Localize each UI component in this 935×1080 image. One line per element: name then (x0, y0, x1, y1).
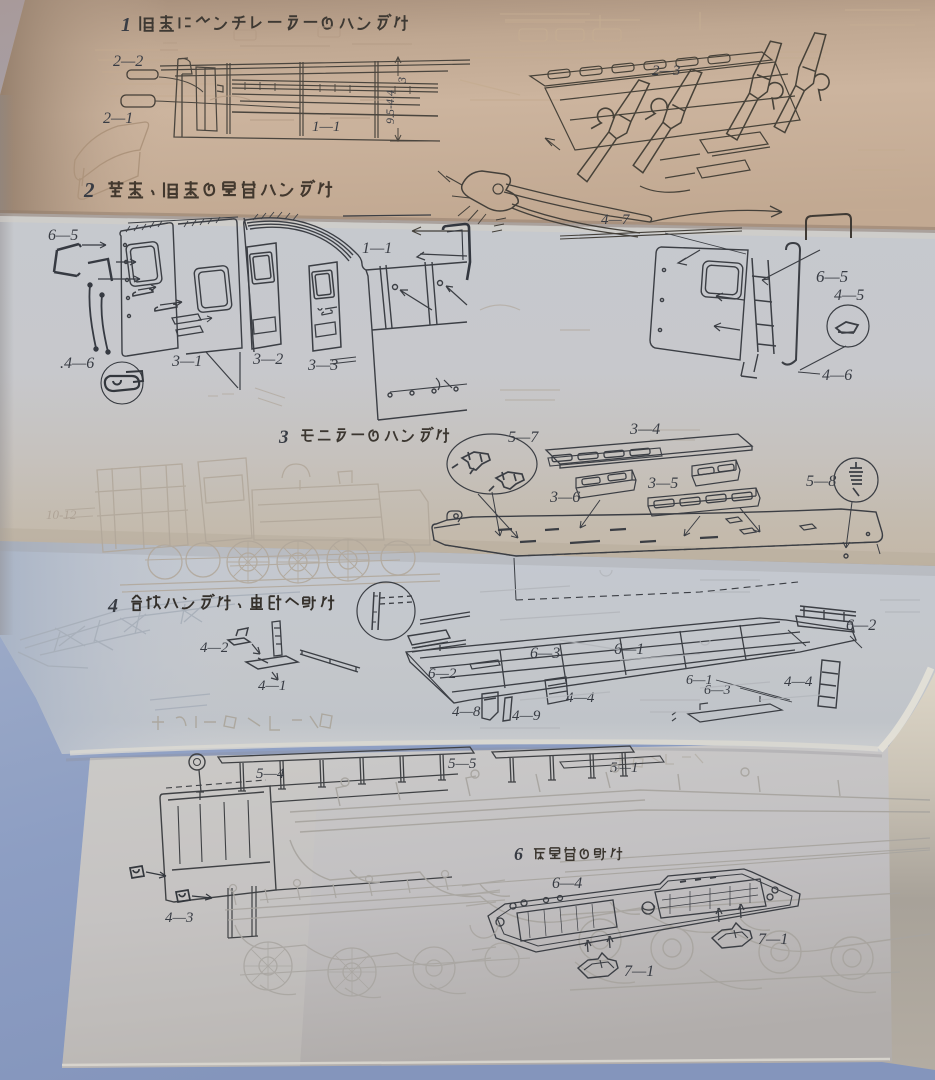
svg-text:9.5-4.4: 9.5-4.4 (383, 90, 397, 124)
svg-text:3—1: 3—1 (171, 353, 202, 370)
svg-text:6—2: 6—2 (428, 666, 457, 682)
svg-text:7—1: 7—1 (758, 931, 788, 948)
svg-text:2—2: 2—2 (113, 53, 143, 70)
svg-text:6—4: 6—4 (552, 875, 582, 892)
svg-text:4—1: 4—1 (258, 678, 286, 694)
svg-text:10-12: 10-12 (46, 507, 77, 522)
svg-text:4—2: 4—2 (200, 640, 229, 656)
svg-text:6—3: 6—3 (530, 645, 560, 662)
svg-text:3—6: 3—6 (549, 489, 580, 506)
svg-text:4—7: 4—7 (601, 212, 631, 228)
svg-text:4—3: 4—3 (165, 910, 193, 926)
svg-text:3—2: 3—2 (252, 351, 283, 368)
svg-text:5—4: 5—4 (256, 766, 285, 782)
svg-text:5—7: 5—7 (508, 429, 539, 446)
svg-text:3—4: 3—4 (629, 421, 660, 438)
svg-text:4—4: 4—4 (784, 674, 813, 690)
svg-text:4—8: 4—8 (452, 704, 481, 720)
svg-text:4: 4 (107, 595, 118, 617)
svg-text:4—6: 4—6 (822, 367, 852, 384)
svg-text:4—4: 4—4 (566, 690, 595, 706)
svg-text:1—1: 1—1 (312, 119, 340, 135)
svg-text:7—1: 7—1 (624, 963, 654, 980)
svg-text:6: 6 (514, 844, 523, 864)
svg-text:2: 2 (83, 178, 95, 202)
svg-text:5—8: 5—8 (806, 473, 836, 490)
svg-text:3: 3 (395, 77, 409, 84)
svg-text:5—5: 5—5 (448, 756, 477, 772)
svg-text:1—1: 1—1 (362, 240, 392, 257)
svg-text:4—5: 4—5 (834, 287, 864, 304)
svg-text:2—3: 2—3 (652, 63, 680, 79)
svg-text:6—5: 6—5 (48, 227, 78, 244)
svg-text:4—9: 4—9 (512, 708, 541, 724)
svg-text:.4—6: .4—6 (60, 355, 94, 372)
svg-text:3: 3 (278, 427, 289, 448)
svg-text:6—5: 6—5 (816, 267, 848, 286)
svg-text:6—2: 6—2 (846, 617, 876, 634)
svg-text:1: 1 (121, 14, 131, 36)
svg-text:5—1: 5—1 (610, 760, 638, 776)
svg-text:3—5: 3—5 (647, 475, 678, 492)
